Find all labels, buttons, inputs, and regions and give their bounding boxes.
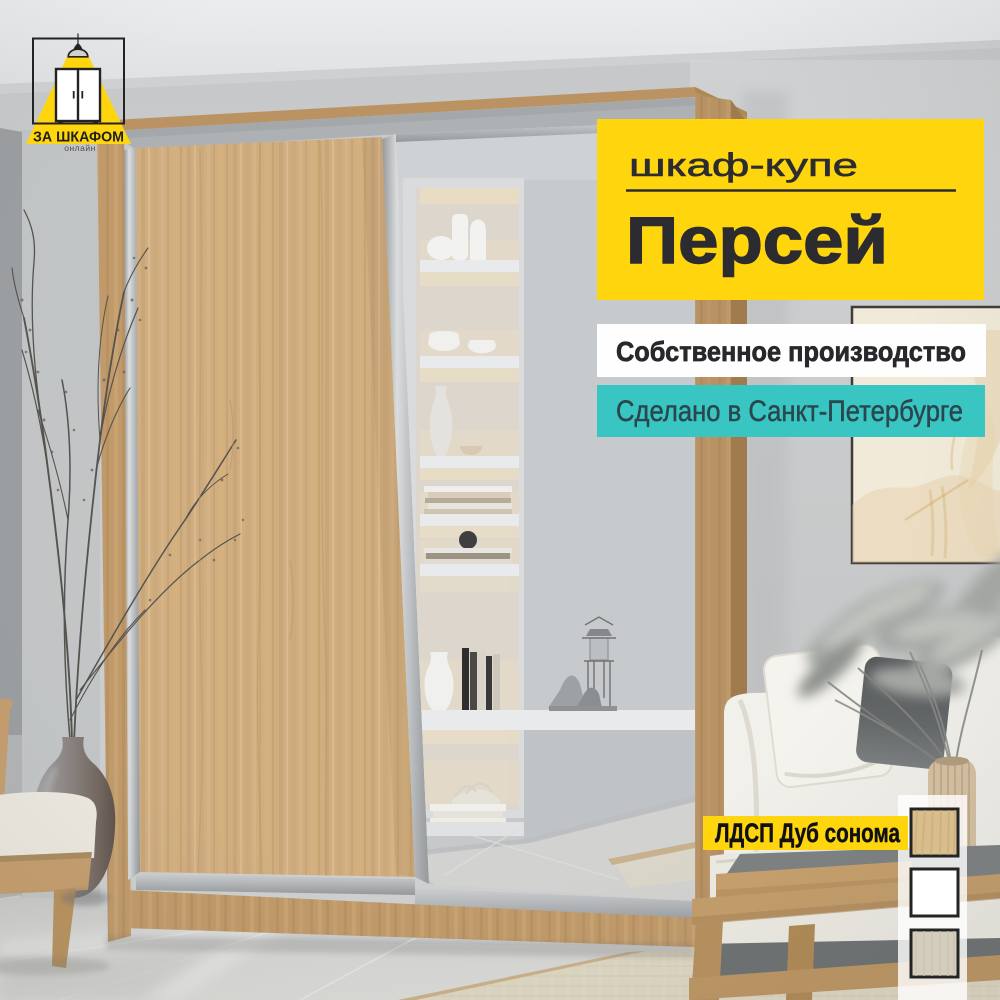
svg-text:онлайн: онлайн: [64, 143, 96, 153]
svg-text:ЛДСП Дуб сонома: ЛДСП Дуб сонома: [715, 818, 901, 848]
svg-text:Персей: Персей: [626, 203, 888, 277]
svg-text:шкаф-купе: шкаф-купе: [629, 147, 858, 183]
svg-text:Сделано в Санкт-Петербурге: Сделано в Санкт-Петербурге: [616, 395, 963, 428]
svg-text:Собственное производство: Собственное производство: [616, 336, 966, 367]
